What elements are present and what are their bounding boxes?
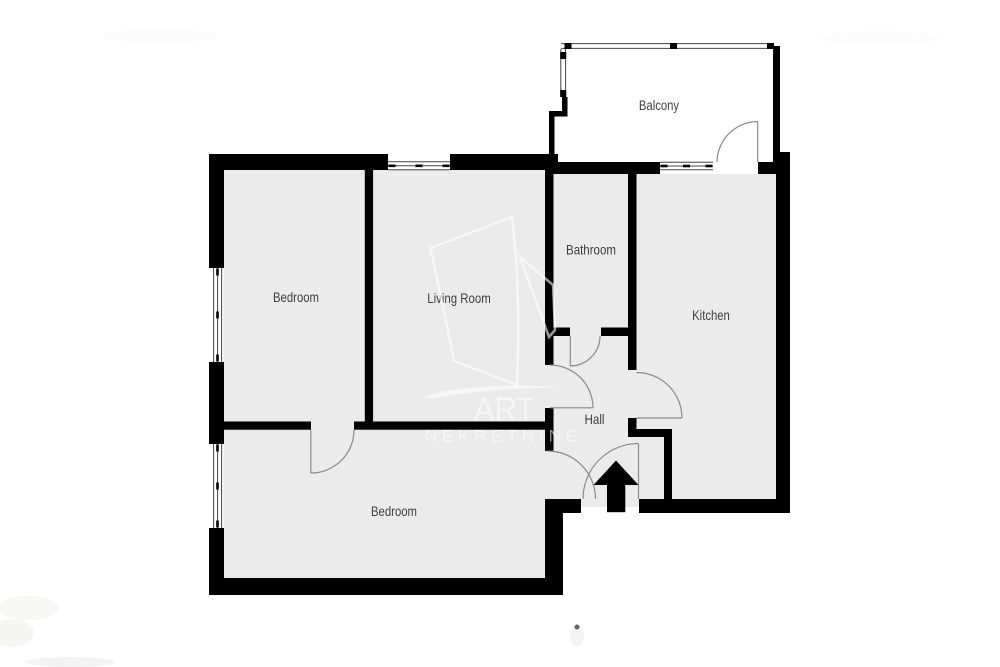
svg-text:ART: ART bbox=[474, 391, 535, 428]
svg-text:Bathroom: Bathroom bbox=[566, 243, 616, 258]
svg-text:Hall: Hall bbox=[585, 412, 605, 427]
svg-text:NEKRETNINE: NEKRETNINE bbox=[425, 427, 577, 446]
svg-text:Living Room: Living Room bbox=[427, 291, 491, 306]
svg-text:Bedroom: Bedroom bbox=[273, 290, 319, 305]
svg-text:Balcony: Balcony bbox=[639, 98, 679, 113]
svg-text:Bedroom: Bedroom bbox=[371, 504, 417, 519]
svg-text:Kitchen: Kitchen bbox=[692, 308, 730, 323]
